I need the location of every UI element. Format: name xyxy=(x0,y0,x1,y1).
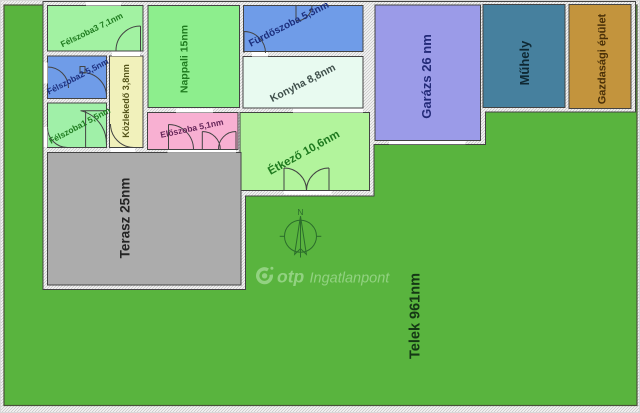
svg-text:Műhely: Műhely xyxy=(517,40,532,86)
svg-text:otp: otp xyxy=(277,267,305,287)
svg-text:Terasz 25nm: Terasz 25nm xyxy=(118,178,133,259)
svg-text:N: N xyxy=(297,207,303,217)
svg-text:Garázs 26 nm: Garázs 26 nm xyxy=(419,34,434,119)
svg-text:Nappali 15nm: Nappali 15nm xyxy=(178,25,190,93)
svg-text:Ingatlanpont: Ingatlanpont xyxy=(310,271,391,287)
svg-text:Közlekedő 3,8nm: Közlekedő 3,8nm xyxy=(121,64,131,138)
svg-text:Telek 961nm: Telek 961nm xyxy=(407,273,423,359)
svg-text:Gazdasági épület: Gazdasági épület xyxy=(596,13,608,104)
